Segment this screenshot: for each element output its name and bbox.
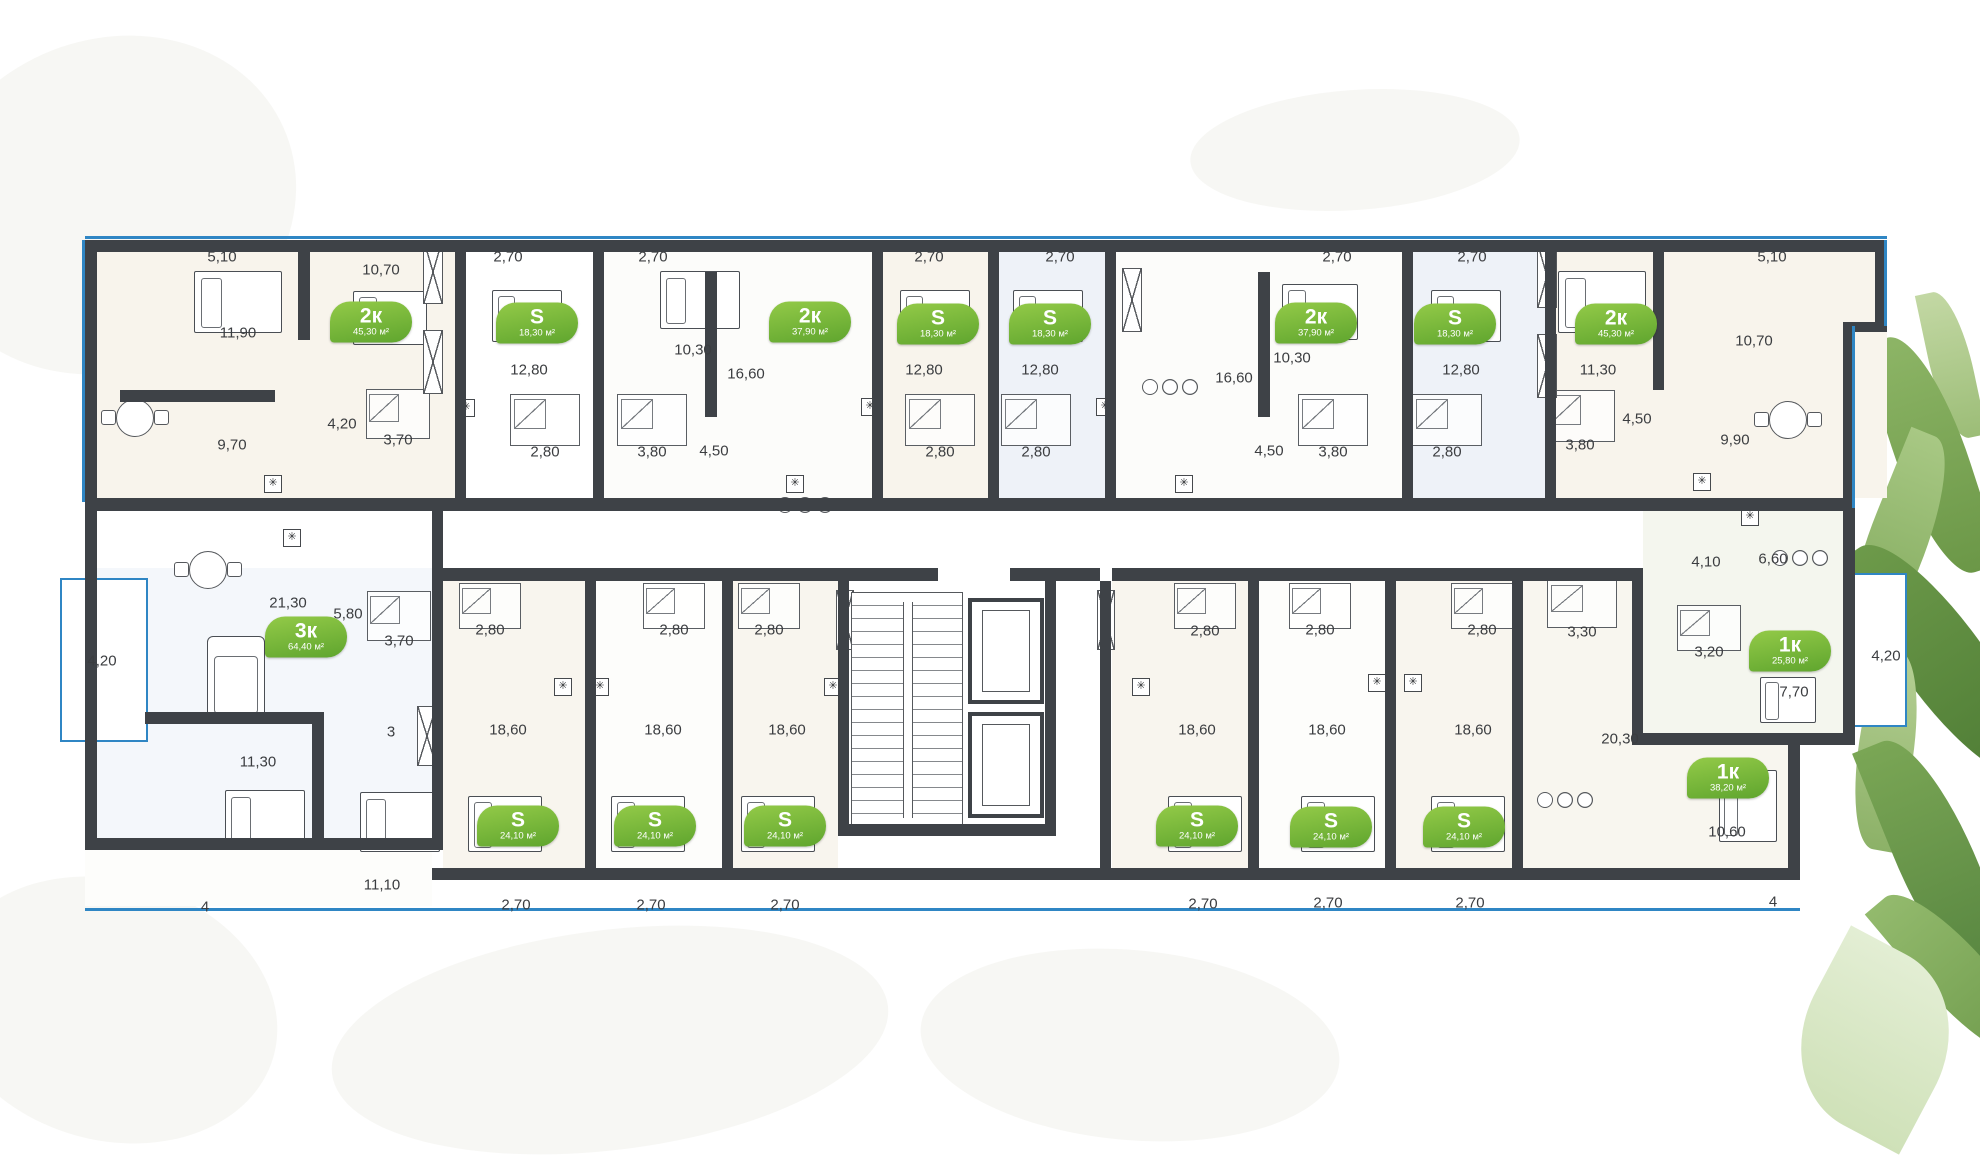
badge-area-label: 24,10 м² bbox=[1300, 832, 1362, 843]
badge-area-label: 24,10 м² bbox=[754, 831, 816, 842]
wall-segment bbox=[1258, 272, 1270, 417]
dimension-label: 18,60 bbox=[1178, 722, 1216, 739]
wall-segment bbox=[432, 568, 838, 581]
dimension-label: 2,80 bbox=[925, 444, 954, 461]
dimension-label: 3,80 bbox=[1318, 444, 1347, 461]
wall-segment bbox=[1632, 568, 1643, 733]
dimension-label: 2,80 bbox=[1190, 623, 1219, 640]
dimension-label: 2,80 bbox=[659, 622, 688, 639]
bathroom-outline bbox=[1001, 394, 1071, 446]
wall-segment bbox=[838, 824, 1056, 836]
badge-rooms-label: 1к bbox=[1697, 762, 1759, 783]
wall-segment bbox=[1112, 568, 1512, 581]
bathroom-outline bbox=[1298, 394, 1368, 446]
staircase bbox=[851, 592, 963, 828]
wall-segment bbox=[85, 240, 1887, 252]
apartment-badge[interactable]: S18,30 м² bbox=[496, 303, 578, 344]
dimension-label: 16,60 bbox=[727, 366, 765, 383]
wall-segment bbox=[1788, 745, 1800, 880]
badge-rooms-label: 2к bbox=[779, 306, 841, 327]
apartment-badge[interactable]: 2к45,30 м² bbox=[330, 302, 412, 343]
floor-plan-page: { "palette":{"wall":"#3e4247","window_bl… bbox=[0, 0, 1980, 1172]
dimension-label: 7,70 bbox=[1779, 684, 1808, 701]
wall-segment bbox=[1010, 568, 1100, 581]
badge-rooms-label: S bbox=[1424, 308, 1486, 329]
apartment-badge[interactable]: S24,10 м² bbox=[1290, 807, 1372, 848]
dimension-label: 4,50 bbox=[1622, 411, 1651, 428]
dimension-label: 9,90 bbox=[1720, 432, 1749, 449]
table-symbol bbox=[116, 399, 154, 437]
dimension-label: 9,70 bbox=[217, 437, 246, 454]
dimension-label: 2,80 bbox=[754, 622, 783, 639]
badge-rooms-label: 3к bbox=[275, 621, 337, 642]
leaf-watermark bbox=[913, 932, 1348, 1158]
unit-floor bbox=[96, 511, 1560, 568]
apartment-badge[interactable]: 1к38,20 м² bbox=[1687, 758, 1769, 799]
wall-segment bbox=[1385, 581, 1396, 868]
wall-segment bbox=[432, 868, 1512, 880]
dimension-label: 2,80 bbox=[1021, 444, 1050, 461]
badge-area-label: 24,10 м² bbox=[1166, 831, 1228, 842]
badge-rooms-label: S bbox=[1166, 810, 1228, 831]
apartment-badge[interactable]: S18,30 м² bbox=[1009, 304, 1091, 345]
wall-segment bbox=[1512, 568, 1632, 581]
badge-area-label: 37,90 м² bbox=[779, 327, 841, 338]
elevator bbox=[968, 712, 1044, 818]
table-symbol bbox=[1769, 401, 1807, 439]
dimension-label: 10,70 bbox=[362, 262, 400, 279]
wall-segment bbox=[312, 712, 324, 838]
wall-segment bbox=[988, 240, 999, 498]
dimension-label: 11,10 bbox=[364, 877, 400, 894]
badge-rooms-label: S bbox=[487, 810, 549, 831]
apartment-badge[interactable]: 2к37,90 м² bbox=[1275, 303, 1357, 344]
ventilation-icon: ✳ bbox=[1175, 475, 1193, 493]
dimension-label: 2,70 bbox=[493, 249, 522, 266]
dimension-label: 10,30 bbox=[674, 342, 712, 359]
dimension-label: 2,70 bbox=[638, 249, 667, 266]
dimension-label: 2,70 bbox=[914, 249, 943, 266]
dimension-label: 11,30 bbox=[1580, 362, 1616, 379]
badge-rooms-label: S bbox=[754, 810, 816, 831]
apartment-badge[interactable]: S24,10 м² bbox=[614, 806, 696, 847]
dimension-label: 16,60 bbox=[1215, 370, 1253, 387]
dimension-label: 3,70 bbox=[383, 432, 412, 449]
dimension-label: 18,60 bbox=[768, 722, 806, 739]
wall-segment bbox=[145, 712, 324, 724]
apartment-badge[interactable]: S24,10 м² bbox=[1423, 807, 1505, 848]
window-line bbox=[82, 240, 85, 502]
wall-segment bbox=[85, 838, 432, 850]
wall-segment bbox=[585, 581, 596, 868]
badge-rooms-label: 2к bbox=[340, 306, 402, 327]
wall-segment bbox=[1402, 240, 1413, 498]
badge-rooms-label: S bbox=[907, 308, 969, 329]
wall-segment bbox=[120, 390, 275, 402]
ventilation-icon: ✳ bbox=[554, 678, 572, 696]
window-line bbox=[1884, 240, 1887, 326]
badge-rooms-label: S bbox=[506, 307, 568, 328]
dimension-label: 18,60 bbox=[1308, 722, 1346, 739]
dimension-label: 4,20 bbox=[87, 653, 116, 670]
dimension-label: 2,80 bbox=[1432, 444, 1461, 461]
badge-area-label: 18,30 м² bbox=[907, 329, 969, 340]
wall-segment bbox=[1512, 568, 1523, 868]
dimension-label: 18,60 bbox=[489, 722, 527, 739]
dimension-label: 2,70 bbox=[1455, 895, 1484, 912]
dimension-label: 3,20 bbox=[1694, 644, 1723, 661]
dimension-label: 21,30 bbox=[269, 595, 307, 612]
wall-segment bbox=[1045, 581, 1056, 836]
dimension-label: 4,10 bbox=[1691, 554, 1720, 571]
dimension-label: 2,70 bbox=[1457, 249, 1486, 266]
dimension-label: 2,80 bbox=[1467, 622, 1496, 639]
apartment-badge[interactable]: S24,10 м² bbox=[744, 806, 826, 847]
apartment-badge[interactable]: S24,10 м² bbox=[477, 806, 559, 847]
dimension-label: 12,80 bbox=[1442, 362, 1480, 379]
window-line bbox=[85, 236, 1887, 239]
dimension-label: 2,70 bbox=[1188, 896, 1217, 913]
ventilation-icon: ✳ bbox=[1132, 678, 1150, 696]
dimension-label: 10,60 bbox=[1708, 824, 1746, 841]
apartment-badge[interactable]: 2к45,30 м² bbox=[1575, 304, 1657, 345]
wall-segment bbox=[85, 240, 97, 850]
dimension-label: 11,30 bbox=[240, 754, 276, 771]
dimension-label: 3,70 bbox=[384, 633, 413, 650]
wall-segment bbox=[1545, 240, 1556, 498]
dimension-label: 12,80 bbox=[510, 362, 548, 379]
badge-rooms-label: 2к bbox=[1285, 307, 1347, 328]
wall-segment bbox=[1100, 581, 1111, 868]
wall-segment bbox=[593, 240, 604, 498]
wall-segment bbox=[298, 240, 310, 340]
wall-segment bbox=[1512, 868, 1800, 880]
apartment-badge[interactable]: S18,30 м² bbox=[897, 304, 979, 345]
badge-rooms-label: S bbox=[624, 810, 686, 831]
dimension-label: 11,90 bbox=[220, 325, 256, 342]
dimension-label: 4,20 bbox=[1871, 648, 1900, 665]
bed-symbol bbox=[660, 271, 740, 329]
dimension-label: 2,70 bbox=[636, 897, 665, 914]
dimension-label: 2,70 bbox=[770, 897, 799, 914]
dimension-label: 4,50 bbox=[1254, 443, 1283, 460]
badge-rooms-label: S bbox=[1300, 811, 1362, 832]
dimension-label: 3 bbox=[387, 724, 395, 741]
window-line bbox=[85, 908, 1800, 911]
bathroom-outline bbox=[1547, 580, 1617, 628]
dimension-label: 2,80 bbox=[1305, 622, 1334, 639]
wall-segment bbox=[1248, 581, 1259, 868]
dimension-label: 3,30 bbox=[1567, 624, 1596, 641]
dimension-label: 3,80 bbox=[637, 444, 666, 461]
wall-segment bbox=[838, 581, 849, 836]
window-line bbox=[1852, 326, 1855, 508]
badge-area-label: 38,20 м² bbox=[1697, 783, 1759, 794]
bathroom-outline bbox=[617, 394, 687, 446]
dimension-label: 5,10 bbox=[207, 249, 236, 266]
bathroom-outline bbox=[510, 394, 580, 446]
wall-segment bbox=[722, 581, 733, 868]
dimension-label: 2,80 bbox=[530, 444, 559, 461]
badge-area-label: 45,30 м² bbox=[340, 327, 402, 338]
dimension-label: 10,30 bbox=[1273, 350, 1311, 367]
bathroom-outline bbox=[905, 394, 975, 446]
table-symbol bbox=[189, 551, 227, 589]
unit-floor bbox=[1690, 880, 1800, 908]
dimension-label: 2,70 bbox=[1322, 249, 1351, 266]
badge-area-label: 24,10 м² bbox=[1433, 832, 1495, 843]
wall-segment bbox=[1105, 240, 1116, 498]
wall-segment bbox=[838, 568, 938, 581]
ventilation-icon: ✳ bbox=[283, 529, 301, 547]
badge-rooms-label: 2к bbox=[1585, 308, 1647, 329]
elevator bbox=[968, 598, 1044, 704]
bathroom-outline bbox=[1412, 394, 1482, 446]
apartment-badge[interactable]: S18,30 м² bbox=[1414, 304, 1496, 345]
ventilation-icon: ✳ bbox=[786, 475, 804, 493]
badge-area-label: 18,30 м² bbox=[506, 328, 568, 339]
wall-segment bbox=[85, 498, 1855, 511]
dimension-label: 2,80 bbox=[475, 622, 504, 639]
badge-area-label: 45,30 м² bbox=[1585, 329, 1647, 340]
leaf-watermark bbox=[1186, 79, 1524, 222]
dimension-label: 10,70 bbox=[1735, 333, 1773, 350]
badge-area-label: 64,40 м² bbox=[275, 642, 337, 653]
ventilation-icon: ✳ bbox=[1404, 674, 1422, 692]
stools-symbol bbox=[1142, 379, 1158, 395]
dimension-label: 18,60 bbox=[644, 722, 682, 739]
badge-area-label: 25,80 м² bbox=[1759, 656, 1821, 667]
wall-segment bbox=[432, 498, 443, 850]
apartment-badge[interactable]: S24,10 м² bbox=[1156, 806, 1238, 847]
badge-area-label: 18,30 м² bbox=[1019, 329, 1081, 340]
badge-rooms-label: S bbox=[1433, 811, 1495, 832]
dimension-label: 20,30 bbox=[1601, 731, 1639, 748]
badge-area-label: 24,10 м² bbox=[487, 831, 549, 842]
apartment-badge[interactable]: 2к37,90 м² bbox=[769, 302, 851, 343]
dimension-label: 12,80 bbox=[1021, 362, 1059, 379]
dimension-label: 5,10 bbox=[1757, 249, 1786, 266]
wardrobe-symbol bbox=[423, 330, 443, 394]
wall-segment bbox=[1632, 733, 1855, 745]
sofa-symbol bbox=[207, 636, 265, 724]
badge-area-label: 37,90 м² bbox=[1285, 328, 1347, 339]
dimension-label: 12,80 bbox=[905, 362, 943, 379]
apartment-badge[interactable]: 3к64,40 м² bbox=[265, 617, 347, 658]
badge-area-label: 18,30 м² bbox=[1424, 329, 1486, 340]
dimension-label: 2,70 bbox=[501, 897, 530, 914]
ventilation-icon: ✳ bbox=[1693, 473, 1711, 491]
dimension-label: 4,50 bbox=[699, 443, 728, 460]
stools-symbol bbox=[1537, 792, 1553, 808]
wall-segment bbox=[872, 240, 883, 498]
dimension-label: 2,70 bbox=[1313, 895, 1342, 912]
ventilation-icon: ✳ bbox=[264, 475, 282, 493]
dimension-label: 6,60 bbox=[1758, 551, 1787, 568]
dimension-label: 4,20 bbox=[327, 416, 356, 433]
leaf-watermark bbox=[319, 897, 902, 1172]
badge-rooms-label: 1к bbox=[1759, 635, 1821, 656]
dimension-label: 3,80 bbox=[1565, 437, 1594, 454]
unit-floor bbox=[432, 880, 1512, 908]
dimension-label: 18,60 bbox=[1454, 722, 1492, 739]
apartment-badge[interactable]: 1к25,80 м² bbox=[1749, 631, 1831, 672]
ventilation-icon: ✳ bbox=[1368, 674, 1386, 692]
wall-segment bbox=[455, 240, 466, 498]
badge-rooms-label: S bbox=[1019, 308, 1081, 329]
dimension-label: 2,70 bbox=[1045, 249, 1074, 266]
dimension-label: 4 bbox=[201, 899, 209, 916]
dimension-label: 4 bbox=[1769, 894, 1777, 911]
badge-area-label: 24,10 м² bbox=[624, 831, 686, 842]
wardrobe-symbol bbox=[1122, 268, 1142, 332]
